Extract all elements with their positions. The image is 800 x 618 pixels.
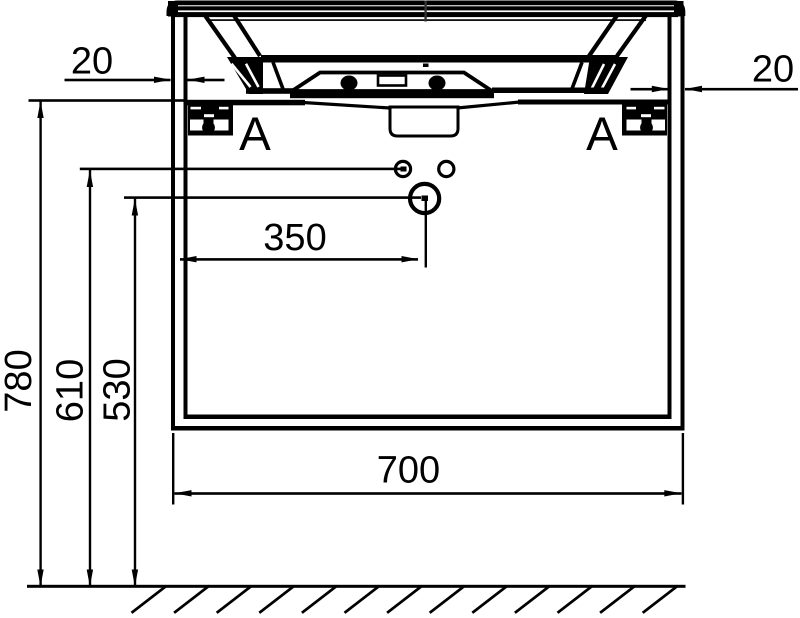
svg-text:700: 700 bbox=[377, 450, 440, 492]
svg-text:780: 780 bbox=[0, 349, 40, 412]
svg-text:350: 350 bbox=[263, 217, 326, 259]
svg-text:20: 20 bbox=[752, 49, 794, 91]
svg-text:A: A bbox=[239, 108, 271, 161]
svg-text:A: A bbox=[586, 108, 618, 161]
svg-text:610: 610 bbox=[50, 359, 92, 422]
svg-text:530: 530 bbox=[97, 358, 139, 421]
svg-text:20: 20 bbox=[71, 41, 113, 83]
